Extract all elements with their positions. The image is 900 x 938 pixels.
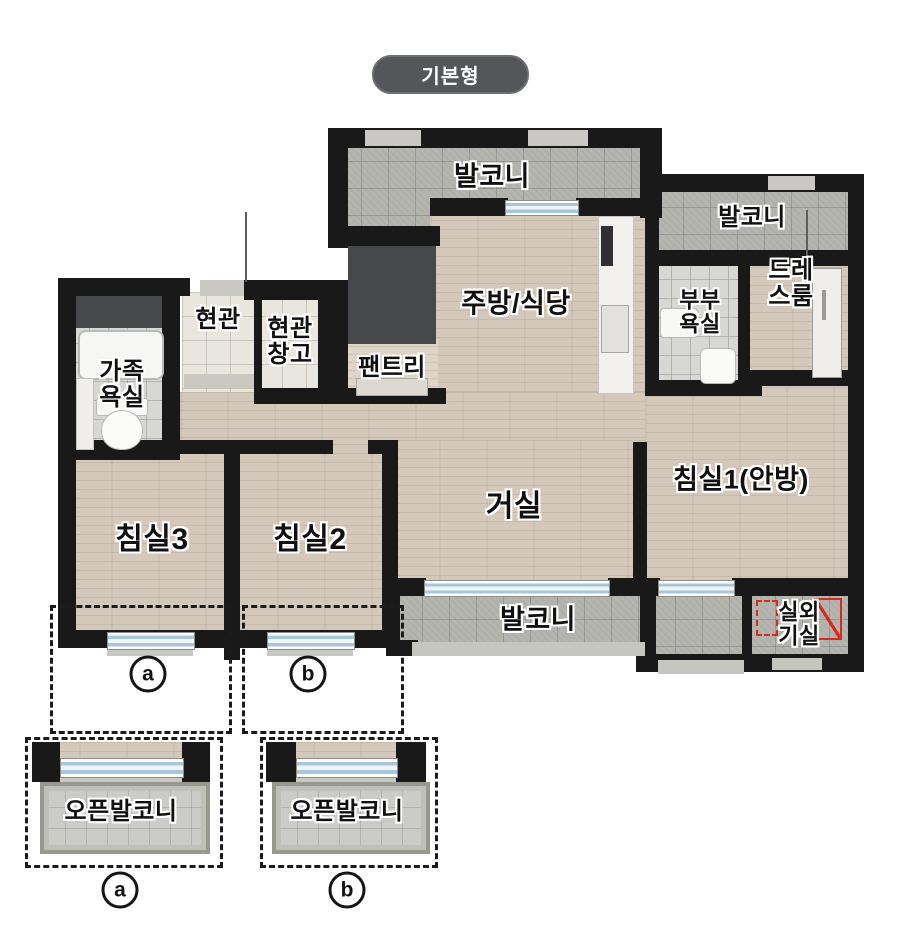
balcony-edge [658, 660, 744, 674]
marker-a: a [130, 656, 167, 693]
plan-type-label: 기본형 [421, 60, 479, 89]
entrance-door-sill [200, 280, 244, 296]
label-outdoor-unit: 실외 기실 [778, 600, 819, 648]
wall-segment [162, 296, 180, 458]
fridge [601, 226, 613, 266]
label-master-bath: 부부 욕실 [679, 288, 720, 336]
marker-b: b [290, 656, 327, 693]
wall-segment [738, 262, 750, 380]
label-bedroom2: 침실2 [273, 524, 346, 556]
wall-segment [58, 278, 190, 296]
wall-segment [58, 278, 76, 648]
label-balcony-top-right: 발코니 [718, 205, 786, 231]
window [505, 200, 579, 216]
label-family-bath: 가족 욕실 [99, 359, 144, 411]
wall-segment [848, 174, 864, 672]
plan-type-badge: 기본형 [372, 55, 529, 94]
marker-detail-b: b [329, 872, 366, 909]
wall-segment [633, 442, 647, 584]
label-bedroom3: 침실3 [115, 524, 188, 556]
wall-segment [645, 214, 659, 396]
vanity [76, 378, 94, 450]
label-living: 거실 [486, 491, 542, 523]
wardrobe [812, 268, 842, 378]
window [424, 580, 610, 597]
label-pantry: 팬트리 [358, 355, 426, 381]
toilet [700, 348, 736, 384]
kitchen-sink [601, 305, 629, 353]
toilet [101, 410, 143, 450]
wall-segment [742, 590, 752, 660]
wall-segment [58, 440, 333, 454]
leader-line [245, 212, 247, 282]
label-open-balcony-a: 오픈발코니 [65, 799, 178, 825]
balcony-edge [412, 642, 645, 656]
label-open-balcony-b: 오픈발코니 [291, 799, 404, 825]
duct-block-center [348, 244, 436, 344]
duct-block-left [68, 294, 168, 328]
label-kitchen: 주방/식당 [461, 289, 570, 318]
wall-segment [328, 226, 440, 246]
window [658, 580, 735, 597]
wall-segment [318, 296, 348, 392]
wall-segment [656, 174, 864, 192]
label-bedroom1: 침실1(안방) [673, 465, 809, 494]
window-sill [365, 130, 421, 146]
wall-segment [254, 296, 262, 392]
label-entrance: 현관 [195, 307, 240, 333]
wall-segment [430, 198, 508, 216]
leader-line [806, 210, 808, 256]
outdoor-unit-louver-icon [756, 600, 778, 636]
floor-plan: 기본형 [0, 0, 900, 938]
entrance-inner-sill [184, 374, 254, 388]
label-dress-room: 드레 스룸 [768, 258, 813, 310]
label-entrance-storage: 현관 창고 [267, 316, 312, 368]
balcony-edge [772, 658, 822, 670]
label-balcony-bottom: 발코니 [500, 605, 576, 634]
wardrobe-handle [822, 290, 826, 320]
window-sill [768, 176, 815, 190]
label-balcony-top: 발코니 [454, 162, 530, 191]
marker-detail-a: a [102, 872, 139, 909]
window-sill [528, 130, 588, 146]
